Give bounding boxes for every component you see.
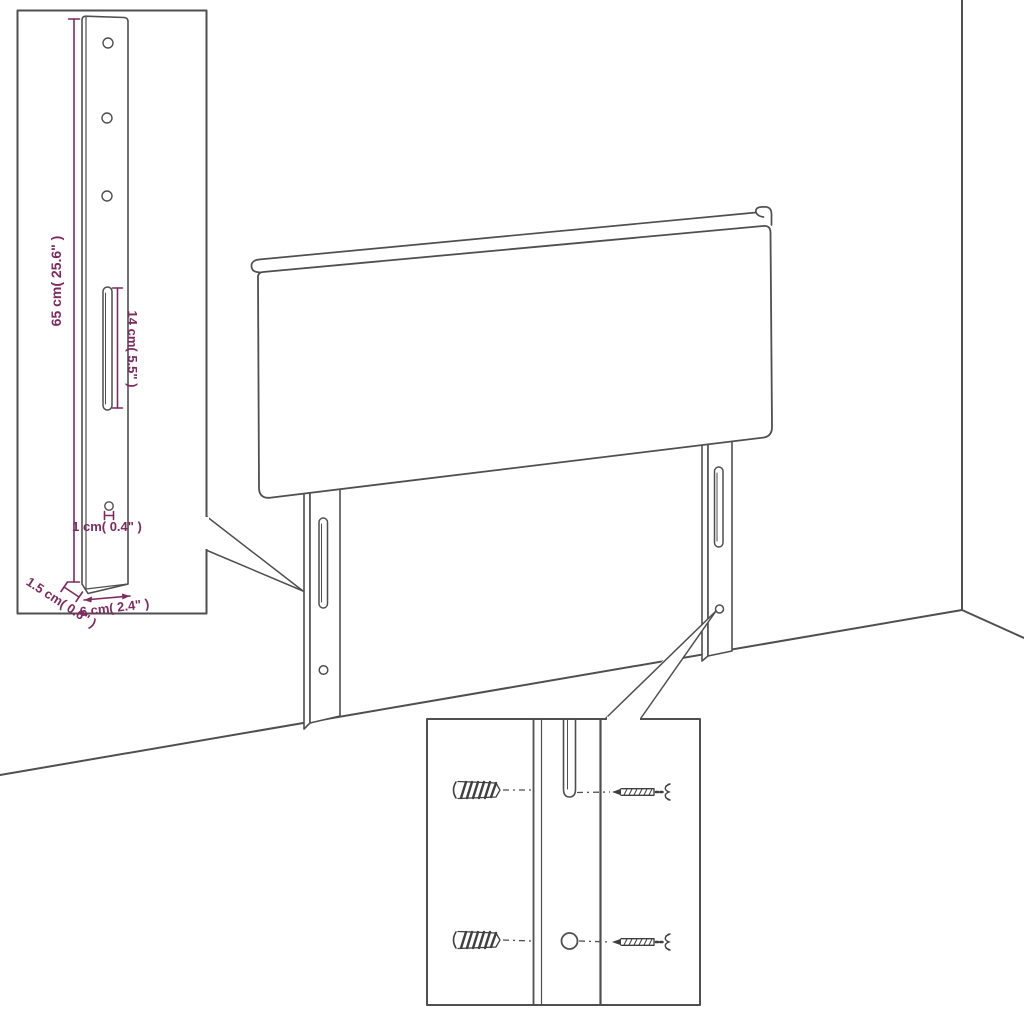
headboard-dimension-diagram: 65 cm( 25.6" ) 14 cm( 5.5" ) 1 cm( 0.4" … [0,0,1024,1024]
headboard-top-left-cap [251,260,260,273]
left-leg-side-face [304,483,310,729]
right-leg-front-face [708,428,732,656]
leg-detail-inset-border-break [205,517,210,549]
callout-wedge-right [604,611,716,718]
floor-line-right [962,610,1024,638]
headboard-front-face [258,226,772,498]
callout-wedge-left [204,514,303,591]
dim-label-leg-height: 65 cm( 25.6" ) [48,236,64,327]
hardware-detail-inset [427,717,700,1006]
right-leg [702,428,732,661]
headboard-panel [251,207,772,498]
dim-label-hole-diameter: 1 cm( 0.4" ) [72,519,142,534]
left-leg-front-face [310,480,340,723]
leg-detail-inset: 65 cm( 25.6" ) 14 cm( 5.5" ) 1 cm( 0.4" … [18,11,210,631]
hardware-inset-border-break [607,717,640,722]
callout-wedge-right-left-line [606,611,716,718]
callout-wedge-right-right-line [641,611,716,718]
left-leg [304,480,340,729]
headboard-top-right-lip [756,207,772,225]
dim-label-slot-length: 14 cm( 5.5" ) [125,311,140,388]
